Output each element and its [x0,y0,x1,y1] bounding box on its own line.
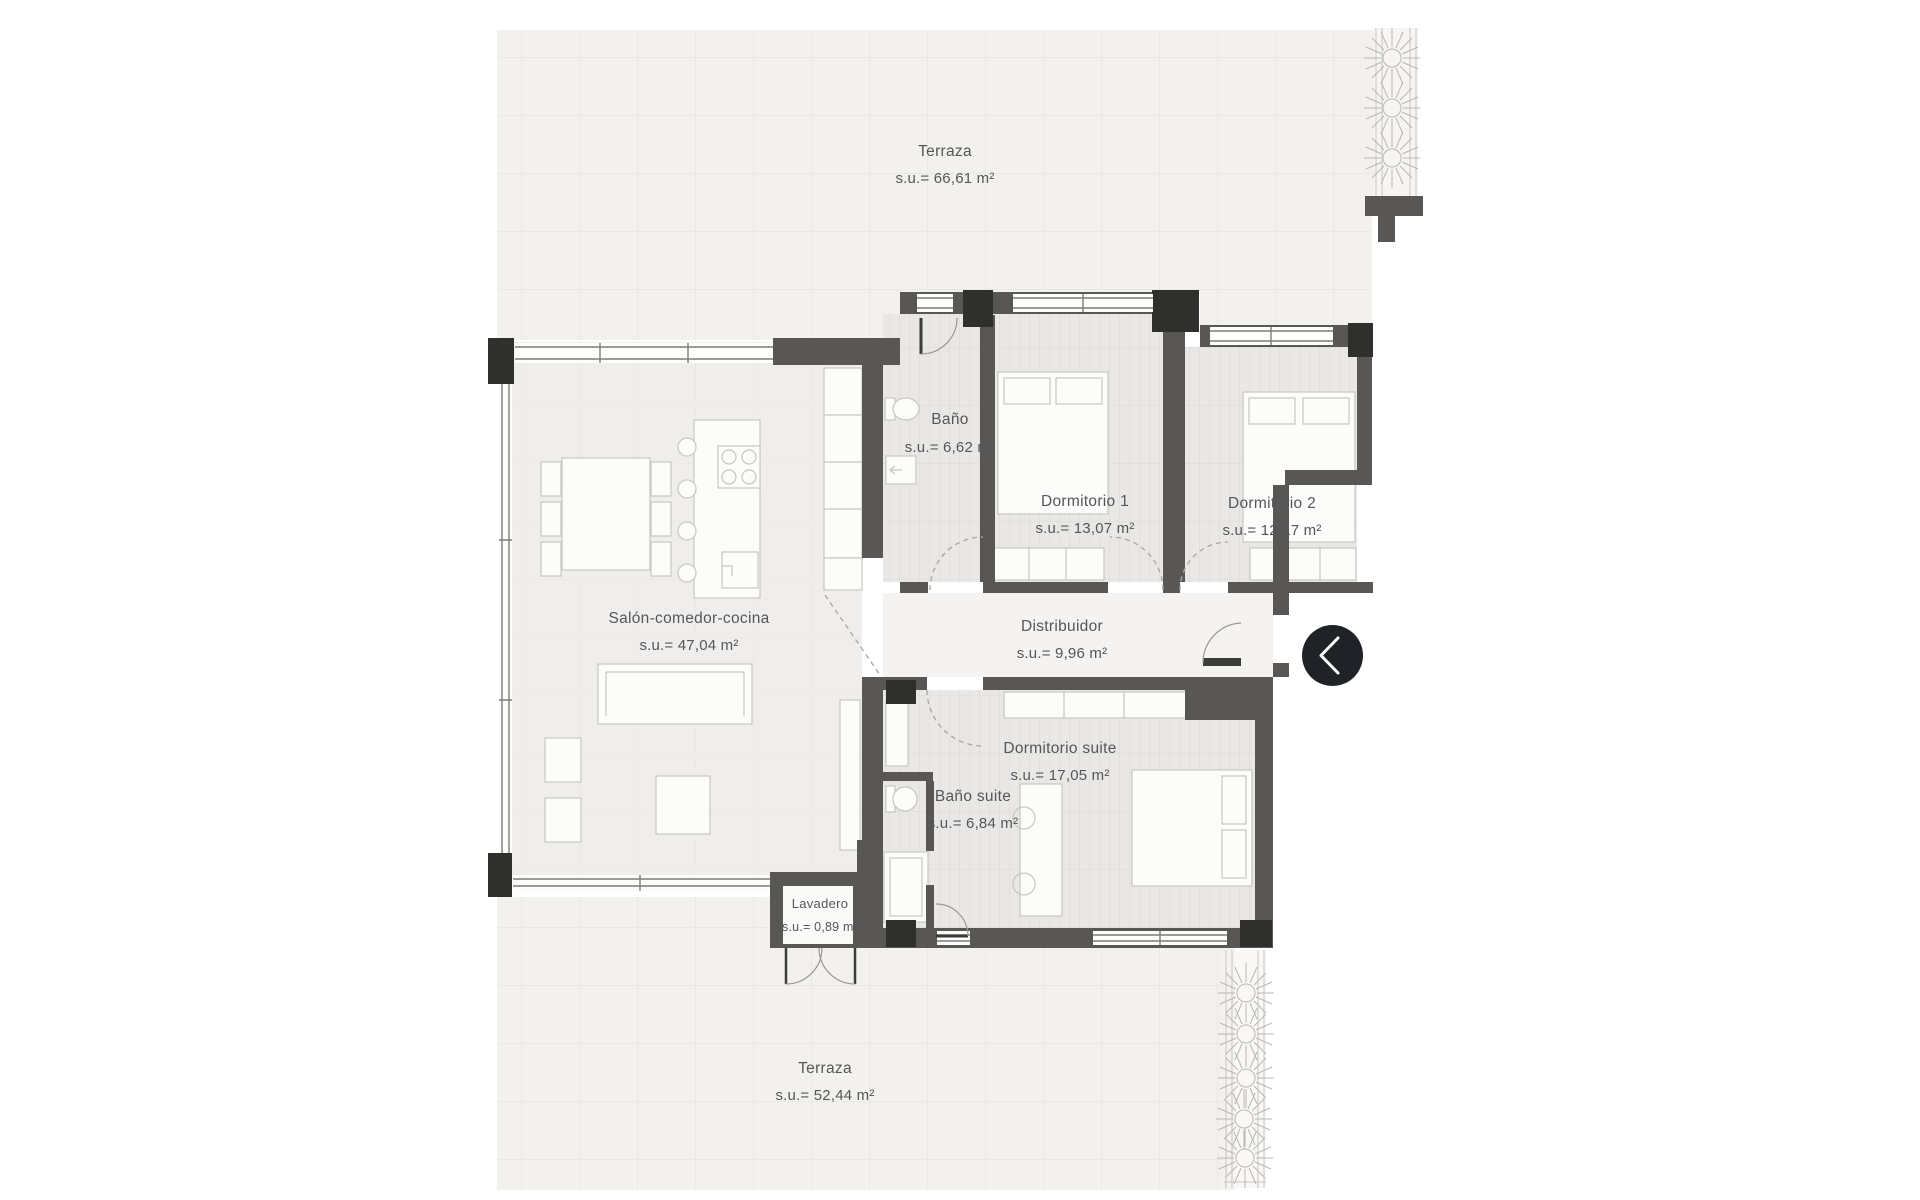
room-label-bano-suite: Baño suite [935,788,1011,805]
wardrobe-suite [1004,692,1186,718]
dresser-suite [1020,784,1062,916]
kitchen-sink [722,552,758,588]
floorplan-viewer: Terraza s.u.= 66,61 m² Baño s.u.= 6,62 m… [0,0,1920,1200]
room-area-dormitorio-2: s.u.= 12,17 m² [1222,522,1321,539]
room-area-dormitorio-suite: s.u.= 17,05 m² [1010,767,1109,784]
coffee-table [656,776,710,834]
room-area-terraza-bottom: s.u.= 52,44 m² [775,1087,874,1104]
wardrobe-dorm1 [992,548,1104,580]
room-label-salon: Salón-comedor-cocina [608,610,769,627]
room-area-salon: s.u.= 47,04 m² [639,637,738,654]
room-label-dormitorio-suite: Dormitorio suite [1003,740,1116,757]
chevron-left-icon [1302,625,1363,686]
room-label-bano: Baño [931,411,968,428]
armchair [545,798,581,842]
room-area-lavadero: s.u.= 0,89 m² [782,920,858,934]
room-label-dormitorio-1: Dormitorio 1 [1041,493,1129,510]
room-area-distribuidor: s.u.= 9,96 m² [1017,645,1108,662]
room-label-terraza-bottom: Terraza [798,1060,852,1077]
room-area-bano-suite: s.u.= 6,84 m² [928,815,1019,832]
room-area-dormitorio-1: s.u.= 13,07 m² [1035,520,1134,537]
room-area-bano: s.u.= 6,62 m² [905,439,996,456]
washbasin-suite [886,700,908,766]
wardrobe-dorm2 [1250,548,1356,580]
previous-image-button[interactable] [1302,625,1363,686]
kitchen-counter [824,368,862,558]
room-label-lavadero: Lavadero [792,896,849,911]
dining-table [562,458,650,570]
floor-plan: Terraza s.u.= 66,61 m² Baño s.u.= 6,62 m… [0,0,1920,1200]
room-area-terraza-top: s.u.= 66,61 m² [895,170,994,187]
sideboard [840,700,860,850]
room-label-terraza-top: Terraza [918,143,972,160]
sofa [598,664,752,724]
room-label-dormitorio-2: Dormitorio 2 [1228,495,1316,512]
armchair [545,738,581,782]
plant-strip-bottom [1216,950,1274,1188]
room-label-distribuidor: Distribuidor [1021,618,1103,635]
